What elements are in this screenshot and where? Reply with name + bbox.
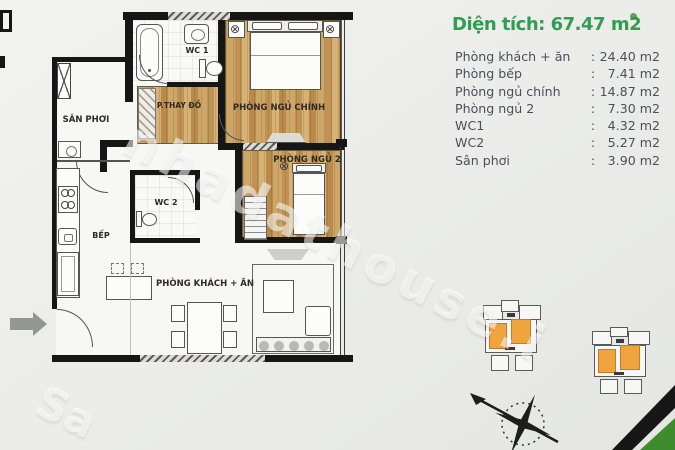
- floor-plan: ⊗ ⊗ ⊗: [0, 0, 430, 420]
- kitchen-cabinet: [57, 252, 79, 296]
- area-row: WC2:5.27 m2: [455, 135, 660, 152]
- bar-stool-icon: [131, 263, 144, 274]
- keyplan-tower-left: [477, 297, 547, 377]
- compass-icon: [468, 390, 578, 450]
- wall-top: [123, 12, 353, 20]
- highlighted-unit: [489, 323, 507, 349]
- neighbor-wall-fragment: [0, 10, 12, 32]
- area-row: Phòng khách + ăn:24.40 m2: [455, 49, 660, 66]
- room-label-kitchen: BẾP: [92, 231, 109, 240]
- louver-window-icon: [57, 63, 71, 99]
- room-label-dressing: P.THAY ĐỒ: [157, 101, 201, 110]
- wall-wc1-left: [125, 14, 133, 102]
- bedroom2-door-hatch: [243, 143, 277, 150]
- chair-icon: [223, 331, 237, 348]
- pillow-icon: [296, 165, 322, 172]
- kitchen-island: [106, 276, 152, 300]
- wall-bottom-left: [52, 355, 140, 362]
- toilet-bowl-icon: [142, 213, 157, 226]
- wall-bottom-right: [265, 355, 353, 362]
- double-bed-icon: [250, 32, 321, 90]
- room-label-wc1: WC 1: [185, 46, 208, 55]
- area-row: Phòng bếp:7.41 m2: [455, 66, 660, 83]
- wall-bottom-hatch: [140, 355, 265, 362]
- area-row: WC1:4.32 m2: [455, 118, 660, 135]
- wall-master-bottom: [218, 143, 345, 150]
- corner-ribbon: [575, 350, 675, 450]
- area-row: Phòng ngủ 2:7.30 m2: [455, 101, 660, 118]
- toilet-bowl-icon: [206, 61, 223, 76]
- room-label-wc2: WC 2: [154, 198, 177, 207]
- floorplan-page: ⊗ ⊗ ⊗: [0, 0, 675, 450]
- armchair-icon: [305, 306, 331, 336]
- wall-wc2-right: [195, 170, 200, 210]
- kitchen-living-divider-line: [130, 243, 131, 355]
- sofa-icon: [256, 337, 331, 352]
- pillow-icon: [252, 22, 282, 30]
- wall-sanphoi-top: [52, 57, 132, 62]
- area-row: Sân phơi:3.90 m2: [455, 153, 660, 170]
- pillow-icon: [288, 22, 318, 30]
- bar-stool-icon: [111, 263, 124, 274]
- wall-wc2-bottom: [130, 238, 200, 243]
- wardrobe-hatch-icon: [138, 88, 156, 139]
- window-wall-right: [340, 20, 345, 355]
- chair-icon: [171, 305, 185, 322]
- wall-wc2-left: [130, 170, 135, 243]
- wall-stub-1: [336, 139, 347, 147]
- wall-wc1-bottom: [167, 82, 218, 87]
- room-label-bedroom2: PHÒNG NGỦ 2: [273, 155, 341, 165]
- kitchen-sink-icon: [58, 228, 77, 245]
- green-dot-mark: [630, 13, 637, 20]
- dining-table-icon: [187, 302, 222, 354]
- wall-top-hatch: [168, 12, 230, 20]
- lamp-icon: ⊗: [325, 23, 335, 35]
- wall-stub-2: [336, 236, 347, 244]
- room-label-master: PHÒNG NGỦ CHÍNH: [233, 103, 325, 113]
- chair-icon: [171, 331, 185, 348]
- coffee-table-icon: [263, 280, 294, 313]
- chair-icon: [223, 305, 237, 322]
- sink-icon: [184, 24, 209, 44]
- wall-bedroom2-left: [235, 150, 242, 243]
- entrance-arrow-icon: [10, 312, 50, 336]
- area-row: Phòng ngủ chính:14.87 m2: [455, 84, 660, 101]
- toilet-tank-icon: [199, 59, 206, 78]
- area-table: Phòng khách + ăn:24.40 m2 Phòng bếp:7.41…: [455, 49, 660, 170]
- stove-icon: [58, 186, 78, 213]
- wardrobe2-icon: [244, 196, 267, 240]
- room-label-living: PHÒNG KHÁCH + ĂN: [156, 279, 254, 289]
- curtain-icon: [266, 133, 306, 143]
- neighbor-wall-stub: [0, 56, 5, 68]
- washing-machine-icon: [58, 141, 81, 158]
- highlighted-unit: [511, 319, 531, 344]
- room-label-sanphoi: SÂN PHƠI: [63, 115, 110, 125]
- wall-wc2-top: [130, 170, 200, 175]
- lamp-icon: ⊗: [230, 23, 240, 35]
- single-bed-icon: [293, 173, 325, 235]
